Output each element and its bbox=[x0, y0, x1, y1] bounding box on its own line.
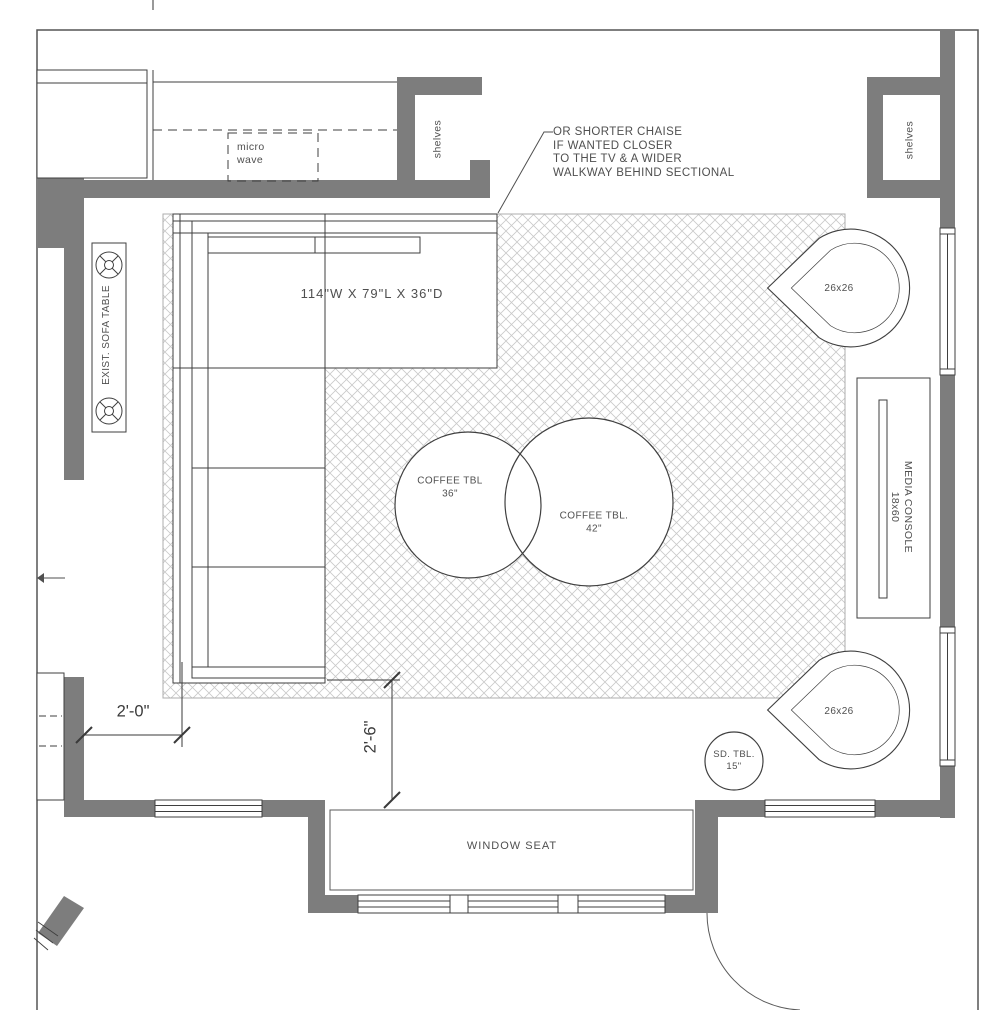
media-console-label: MEDIA CONSOLE 18x60 bbox=[888, 461, 914, 553]
sofa-table-label: EXIST. SOFA TABLE bbox=[101, 285, 114, 385]
left-cabinet bbox=[37, 673, 64, 800]
door-swing-arc bbox=[707, 913, 800, 1010]
corner-chair-top-label: 26x26 bbox=[824, 283, 853, 296]
coffee-table-42-label: COFFEE TBL. 42" bbox=[560, 511, 629, 536]
shelves-right-label: shelves bbox=[903, 121, 916, 159]
dimension-walkway-left: 2'-0" bbox=[117, 703, 150, 722]
dimension-walkway-bottom: 2'-6" bbox=[362, 721, 381, 754]
kitchen-counter bbox=[37, 70, 397, 181]
shelves-left-label: shelves bbox=[431, 120, 444, 158]
microwave-label: micro wave bbox=[237, 141, 265, 167]
note-leader-line bbox=[498, 132, 553, 213]
coffee-tables bbox=[395, 418, 673, 586]
sectional-size-label: 114"W X 79"L X 36"D bbox=[301, 286, 444, 302]
coffee-table-36-label: COFFEE TBL 36" bbox=[417, 476, 483, 501]
floor-plan: OR SHORTER CHAISE IF WANTED CLOSER TO TH… bbox=[0, 0, 1000, 1010]
floor-plan-drawing bbox=[0, 0, 1000, 1010]
side-table-label: SD. TBL. 15" bbox=[713, 749, 755, 773]
corner-chair-bottom-label: 26x26 bbox=[824, 706, 853, 719]
door-arrow-marker bbox=[37, 573, 65, 583]
chaise-note: OR SHORTER CHAISE IF WANTED CLOSER TO TH… bbox=[553, 126, 735, 180]
window-seat-label: WINDOW SEAT bbox=[467, 840, 557, 854]
